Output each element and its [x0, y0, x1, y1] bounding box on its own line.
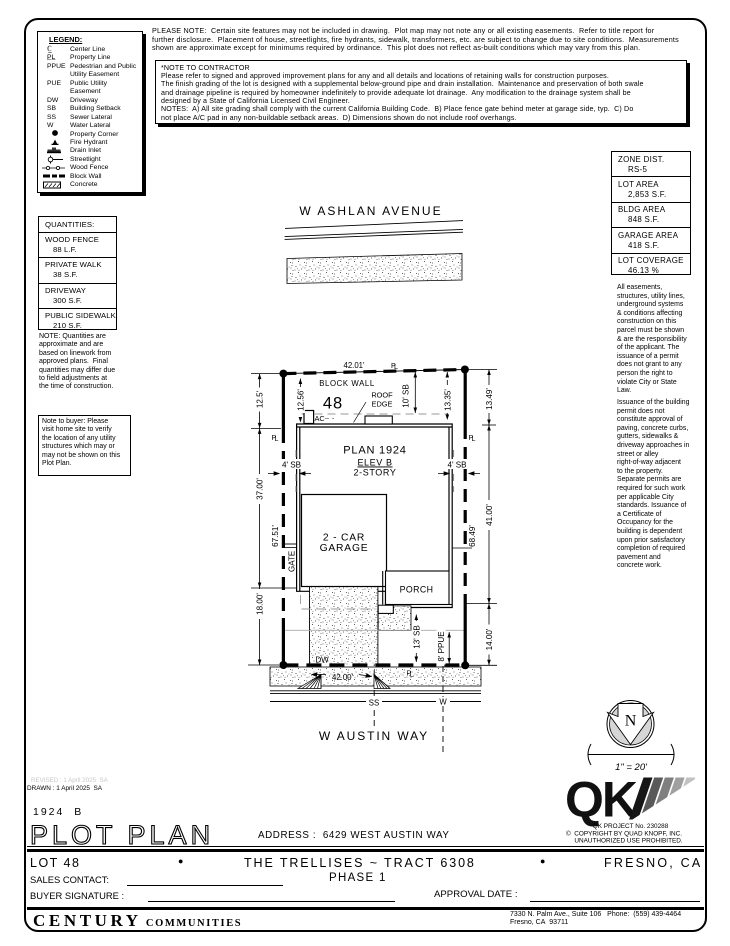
svg-text:4' SB: 4' SB [282, 461, 301, 470]
svg-text:W AUSTIN WAY: W AUSTIN WAY [319, 729, 429, 743]
svg-text:PLAN 1924: PLAN 1924 [343, 445, 406, 457]
svg-text:ELEV B: ELEV B [357, 458, 392, 468]
svg-text:67.51': 67.51' [271, 525, 280, 547]
svg-text:12.56': 12.56' [296, 389, 305, 411]
svg-text:BLOCK WALL: BLOCK WALL [319, 379, 375, 388]
svg-text:10' SB: 10' SB [402, 384, 411, 408]
svg-text:13' SB: 13' SB [412, 625, 421, 649]
svg-text:42.00': 42.00' [332, 673, 354, 682]
svg-text:37.00': 37.00' [256, 478, 265, 500]
svg-text:L: L [410, 670, 414, 679]
svg-text:N: N [625, 713, 637, 730]
svg-text:4' SB: 4' SB [447, 461, 466, 470]
svg-text:L: L [472, 434, 476, 443]
svg-text:13.49': 13.49' [485, 388, 494, 410]
svg-text:48: 48 [323, 395, 343, 413]
svg-text:13.35': 13.35' [443, 389, 452, 411]
svg-text:L: L [275, 434, 279, 443]
svg-text:W ASHLAN AVENUE: W ASHLAN AVENUE [299, 204, 442, 218]
svg-text:SS: SS [369, 699, 379, 708]
svg-text:QK: QK [565, 772, 638, 828]
svg-text:42.01': 42.01' [344, 361, 366, 370]
svg-text:2-STORY: 2-STORY [354, 468, 397, 478]
svg-text:UNAUTHORIZED USE PROHIBITED.: UNAUTHORIZED USE PROHIBITED. [574, 838, 683, 845]
svg-text:AC: AC [315, 414, 326, 423]
svg-text:2 - CAR: 2 - CAR [323, 533, 365, 544]
svg-text:EDGE: EDGE [372, 400, 393, 409]
svg-text:W: W [439, 698, 447, 707]
svg-text:L: L [394, 362, 398, 371]
svg-text:QK PROJECT No. 230288: QK PROJECT No. 230288 [593, 823, 669, 830]
svg-text:GARAGE: GARAGE [320, 543, 369, 554]
svg-text:DW: DW [315, 656, 329, 665]
svg-text:GATE: GATE [288, 551, 297, 572]
svg-text:41.00': 41.00' [485, 504, 494, 526]
svg-text:ROOF: ROOF [371, 391, 393, 400]
svg-text:© COPYRIGHT BY QUAD KNOPF, IN: © COPYRIGHT BY QUAD KNOPF, INC. [566, 830, 682, 838]
svg-text:PORCH: PORCH [400, 585, 434, 595]
svg-text:14.00': 14.00' [485, 628, 494, 650]
svg-text:18.00': 18.00' [256, 593, 265, 615]
svg-text:68.49': 68.49' [468, 525, 477, 547]
svg-text:8' PPUE: 8' PPUE [437, 631, 446, 662]
svg-text:12.5': 12.5' [256, 390, 265, 408]
